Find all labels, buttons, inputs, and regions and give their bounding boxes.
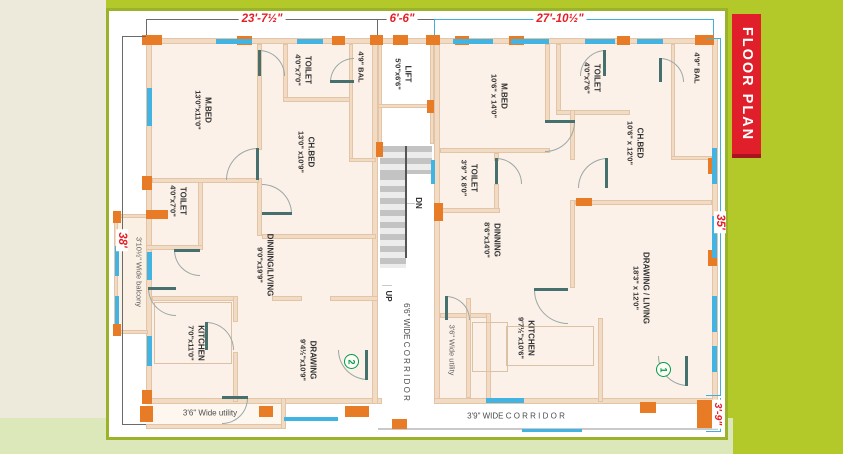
door-leaf [685, 356, 688, 386]
room-label-toilet-top-u1: TOILET4'0"x7'6" [583, 62, 602, 94]
door-leaf [174, 249, 200, 252]
pillar [259, 406, 273, 417]
wall [198, 182, 203, 250]
pillar [142, 176, 152, 190]
room-label-kitchen-u2: KITCHEN7'0"x11'0" [187, 325, 206, 361]
door-leaf [445, 296, 448, 320]
pillar [695, 35, 714, 45]
room-label-lift: LIFT5'0"x6'6" [394, 58, 413, 90]
wall [545, 44, 550, 122]
dim-top-mid: 6'-6" [387, 13, 418, 25]
room-label-chbed-u1: CH.BED10'6" x 12'0" [626, 121, 645, 165]
wall [598, 318, 603, 402]
dim-top-right: 27'-10½" [533, 13, 586, 25]
room-label-dinning-u1: DINNING8'6"x14'0" [483, 222, 502, 258]
label-corridor-horizontal: 3'9" WIDE C O R R I D O R [467, 412, 565, 421]
wall [272, 296, 302, 301]
pillar [434, 203, 443, 221]
label-utility-u2: 3'6" Wide utility [183, 409, 237, 418]
label-up: UP [383, 290, 393, 301]
room-label-toilet-top-u2: TOILET4'0"x7'0" [294, 54, 313, 86]
door-leaf [148, 287, 176, 290]
pillar [376, 142, 383, 157]
floor-plan-page: { "ribbon": { "text": "FLOOR PLAN" }, "d… [0, 0, 843, 454]
dim-bottom-right: 3'-9" [712, 400, 724, 429]
wall [556, 110, 630, 115]
pillar [113, 324, 121, 336]
window-marker [297, 39, 323, 44]
pillar [426, 35, 440, 45]
wall [671, 156, 712, 160]
pillar [393, 35, 408, 45]
dim-tick [706, 431, 721, 432]
pillar [370, 35, 383, 45]
door-leaf [545, 120, 575, 123]
room-label-toilet-left-u2: TOILET4'0"x7'0" [169, 185, 188, 217]
room-label-dinliv-u2: DINNING/LIVING9'0"x19'9" [256, 234, 275, 297]
dim-tick [713, 19, 714, 35]
door-leaf [605, 158, 608, 188]
window-marker [147, 88, 152, 126]
leader-line [382, 285, 392, 286]
window-marker [712, 346, 717, 372]
wall [233, 296, 238, 322]
room-label-mbed-u1: M.BED10'6" x 14'0" [490, 74, 509, 118]
wall [330, 296, 378, 301]
title-ribbon: FLOOR PLAN [732, 14, 761, 158]
dim-left: 38' [116, 229, 128, 251]
pillar [576, 198, 592, 206]
label-utility-u1: 3'6" Wide utility [448, 325, 457, 376]
pillar [113, 211, 121, 223]
dim-tick [122, 36, 146, 37]
wall [146, 424, 286, 429]
pillar [617, 36, 630, 45]
dim-tick [706, 395, 721, 396]
room-label-bal-u2: 4'9" BAL [357, 51, 366, 82]
door-leaf [258, 50, 261, 76]
pillar [140, 406, 153, 422]
label-dn: DN [413, 197, 423, 209]
door-leaf [262, 212, 292, 215]
dim-tick [377, 19, 378, 35]
dim-top-left: 23'-7½" [239, 13, 286, 25]
wall [434, 38, 440, 404]
window-marker [522, 429, 582, 432]
wall [281, 398, 286, 429]
window-marker [147, 252, 152, 280]
pillar [332, 36, 345, 45]
pillar [142, 390, 152, 404]
wall [575, 200, 712, 205]
wall [262, 234, 376, 239]
dim-tick [434, 19, 435, 35]
window-marker [511, 39, 549, 44]
window-marker [453, 39, 493, 44]
room-label-drawing-u2: DRAWING9'4½"x10'9" [299, 339, 318, 381]
pillar [427, 100, 434, 113]
wall [440, 208, 500, 213]
wall [434, 398, 718, 404]
dim-tick [146, 19, 147, 35]
door-leaf [330, 80, 354, 83]
dim-right: 35' [714, 211, 726, 233]
window-marker [712, 296, 717, 332]
window-marker [115, 296, 119, 324]
window-marker [712, 148, 717, 184]
wall [349, 158, 376, 162]
window-marker [637, 39, 663, 44]
dim-tick [122, 424, 146, 425]
door-leaf [534, 288, 568, 291]
pillar [146, 210, 168, 219]
wall [283, 97, 353, 102]
pillar [392, 419, 407, 429]
wall [556, 44, 561, 114]
kitchen-counter [472, 322, 508, 372]
pillar [697, 400, 712, 428]
room-label-bal-u1: 4'9" BAL [693, 52, 702, 83]
window-marker [585, 39, 615, 44]
room-label-chbed-u2: CH.BED13'0" x10'9" [297, 131, 316, 173]
door-leaf [495, 158, 498, 184]
wall [146, 398, 382, 404]
window-marker [486, 398, 524, 403]
wall [378, 104, 434, 108]
label-balcony-u2: 3'10½" Wide balcony [135, 237, 144, 307]
dim-tick [706, 38, 721, 39]
room-label-kitchen-u1: KITCHEN9'7½"x10'6" [517, 317, 536, 359]
wall [233, 352, 238, 402]
door-leaf [222, 396, 248, 399]
room-label-toilet-side-u1: TOILET3'9" X 8'0" [460, 160, 479, 197]
door-leaf [659, 58, 662, 82]
window-marker [216, 39, 252, 44]
door-leaf [205, 322, 208, 350]
door-leaf [603, 50, 606, 76]
wall [570, 200, 575, 288]
unit2-badge: 2 [344, 354, 359, 369]
unit1-badge: 1 [656, 362, 671, 377]
wall [378, 44, 382, 144]
pillar [345, 406, 369, 417]
page-title: FLOOR PLAN [739, 27, 755, 141]
label-corridor-vertical: 6'6" WIDE C O R R I D O R [401, 303, 411, 401]
door-leaf [365, 350, 368, 380]
stairs [380, 174, 406, 268]
room-label-drawliv-u1: DRAWING / LIVING18'3" x 12'0" [632, 252, 651, 324]
window-marker [284, 417, 338, 421]
pillar [640, 402, 656, 413]
left-margin-panel [0, 0, 106, 420]
window-marker [147, 336, 152, 366]
door-leaf [256, 148, 259, 180]
window-marker [431, 160, 435, 184]
stair-rail [405, 146, 407, 258]
room-label-mbed-u2: M.BED13'0"x11'0" [194, 90, 213, 129]
